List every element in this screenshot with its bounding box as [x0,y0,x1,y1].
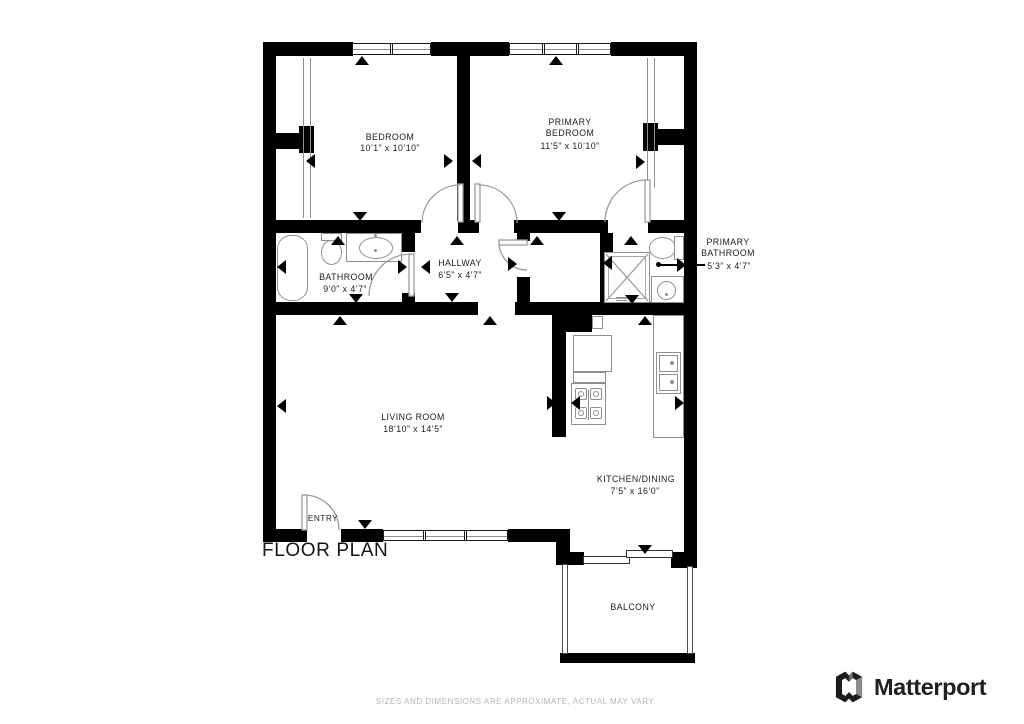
wall-band-bottom-right [515,302,697,315]
drain-dot [665,293,668,296]
marker-up-icon [333,316,347,325]
window-mullion [576,44,579,54]
kitchen-cabinet [592,316,603,329]
marker-down-icon [353,212,367,221]
marker-right-icon [675,396,684,410]
marker-down-icon [349,294,363,303]
primary-bedroom-window [509,43,611,55]
burner-ring [593,410,599,416]
marker-left-icon [472,154,481,168]
leader-dash [697,264,705,266]
marker-down-icon [445,293,459,302]
window-mullion [390,44,393,54]
bedroom-dims: 10’1” x 10’10” [360,143,420,153]
wall-left [263,42,276,542]
kitchen-sink-basin [659,355,678,372]
burner-ring [578,410,584,416]
primary-bathroom-door-arc [605,180,647,222]
marker-left-icon [571,396,580,410]
bedroom-label: BEDROOM [366,132,415,142]
window-mullion [542,44,545,54]
marker-down-icon [638,545,652,554]
marker-left-icon [603,256,612,270]
primary-closet-doors [647,58,655,188]
primary-sink-basin [657,281,676,300]
wall-between-bedroom-doors [458,220,479,233]
wall-hallway-right-lower [517,277,530,302]
marker-left-icon [277,260,286,274]
marker-right-icon [398,260,407,274]
marker-up-icon [331,236,345,245]
primary-bedroom-label: BEDROOM [546,128,595,138]
primary-bathroom-dims: 5’3” x 4’7” [707,261,751,271]
faucet-dot [374,234,377,237]
drain-dot [374,249,377,252]
hallway-dims: 6’5” x 4’7” [438,270,482,280]
primary-bedroom-door-arc [479,185,517,223]
marker-right-icon [444,154,453,168]
floor-plan-page: BEDROOM 10’1” x 10’10” PRIMARY BEDROOM 1… [0,0,1024,724]
door-arc-layer [0,0,1024,724]
shower-stall-inner [608,256,646,299]
primary-toilet-bowl [649,237,676,259]
primary-bathroom-label: BATHROOM [701,248,755,258]
marker-window-icon [549,56,563,65]
wall-primary-bedroom-bottom [514,220,608,233]
marker-left-icon [306,154,315,168]
window-mullion [464,531,467,540]
wall-bathroom-right-upper [402,233,415,252]
hallway-label: HALLWAY [438,258,482,268]
window-sill-line [510,49,610,50]
marker-left-icon [421,260,430,274]
marker-down-icon [358,520,372,529]
page-title: FLOOR PLAN [262,540,388,562]
living-room-label: LIVING ROOM [381,412,445,422]
burner-ring [593,391,599,397]
bedroom-door-arc [422,185,460,223]
bathroom-label: BATHROOM [319,272,373,282]
matterport-logo: Matterport [835,670,986,704]
marker-right-icon [547,396,556,410]
wall-kitchen-west [552,315,566,437]
marker-down-icon [552,212,566,221]
refrigerator [573,335,612,372]
leader-arrow-icon [677,258,686,272]
primary-bedroom-dims: 11’5” x 10’10” [541,141,600,151]
bathroom-door-leaf [409,254,414,296]
wall-top-mid [431,42,509,56]
primary-bedroom-door-leaf [475,184,480,222]
marker-up-icon [638,316,652,325]
entry-door-leaf [302,495,307,530]
wall-bedroom-bottom [263,220,421,233]
living-room-window [383,530,508,541]
primary-bedroom-label: PRIMARY [548,117,591,127]
matterport-mark-icon [835,670,863,704]
marker-up-icon [624,236,638,245]
window-sill-line [384,536,507,537]
wall-hallway-right-upper [517,233,530,241]
faucet-dot [670,361,674,365]
marker-right-icon [636,155,645,169]
primary-bathroom-label: PRIMARY [706,237,749,247]
wall-balcony-right-block [671,552,697,568]
wall-kitchen-step-horizontal [556,552,584,565]
wall-bottom-3 [508,529,556,542]
wall-top-left [263,42,353,56]
balcony-railing-right [687,566,693,654]
window-mullion [423,531,426,540]
marker-up-icon [530,236,544,245]
living-room-dims: 18’10” x 14’5” [383,424,443,434]
wall-balcony-bottom [560,653,695,663]
primary-closet-stub [658,129,684,145]
bathroom-sink-basin [359,237,393,259]
marker-up-icon [483,316,497,325]
primary-toilet-tank [674,236,684,260]
balcony-label: BALCONY [610,602,655,612]
balcony-railing-left [562,564,568,654]
balcony-sliding-door-panel [583,556,630,564]
marker-window-icon [355,56,369,65]
wall-primary-bath-top [648,220,684,233]
wall-between-bedrooms [457,56,470,221]
faucet-dot [670,380,674,384]
marker-left-icon [277,399,286,413]
kitchen-dining-label: KITCHEN/DINING [597,474,675,484]
marker-down-icon [625,295,639,304]
stove-grate-line [588,390,589,420]
kitchen-dining-dims: 7’5” x 16’0” [611,486,660,496]
bedroom-window [352,43,431,55]
marker-up-icon [450,236,464,245]
kitchen-sink-basin [659,374,678,391]
entry-label: ENTRY [308,513,338,523]
wall-bathroom-right-lower [402,293,415,302]
bedroom-closet-doors [303,58,311,218]
marker-right-icon [508,257,517,271]
matterport-wordmark: Matterport [874,674,986,701]
wall-band-bottom-left [263,302,478,315]
kitchen-counter-small [573,372,606,383]
bathroom-dims: 9’0” x 4’7” [323,284,367,294]
disclaimer-text: SIZES AND DIMENSIONS ARE APPROXIMATE, AC… [376,697,656,706]
wall-kitchen-head-block [566,315,592,332]
